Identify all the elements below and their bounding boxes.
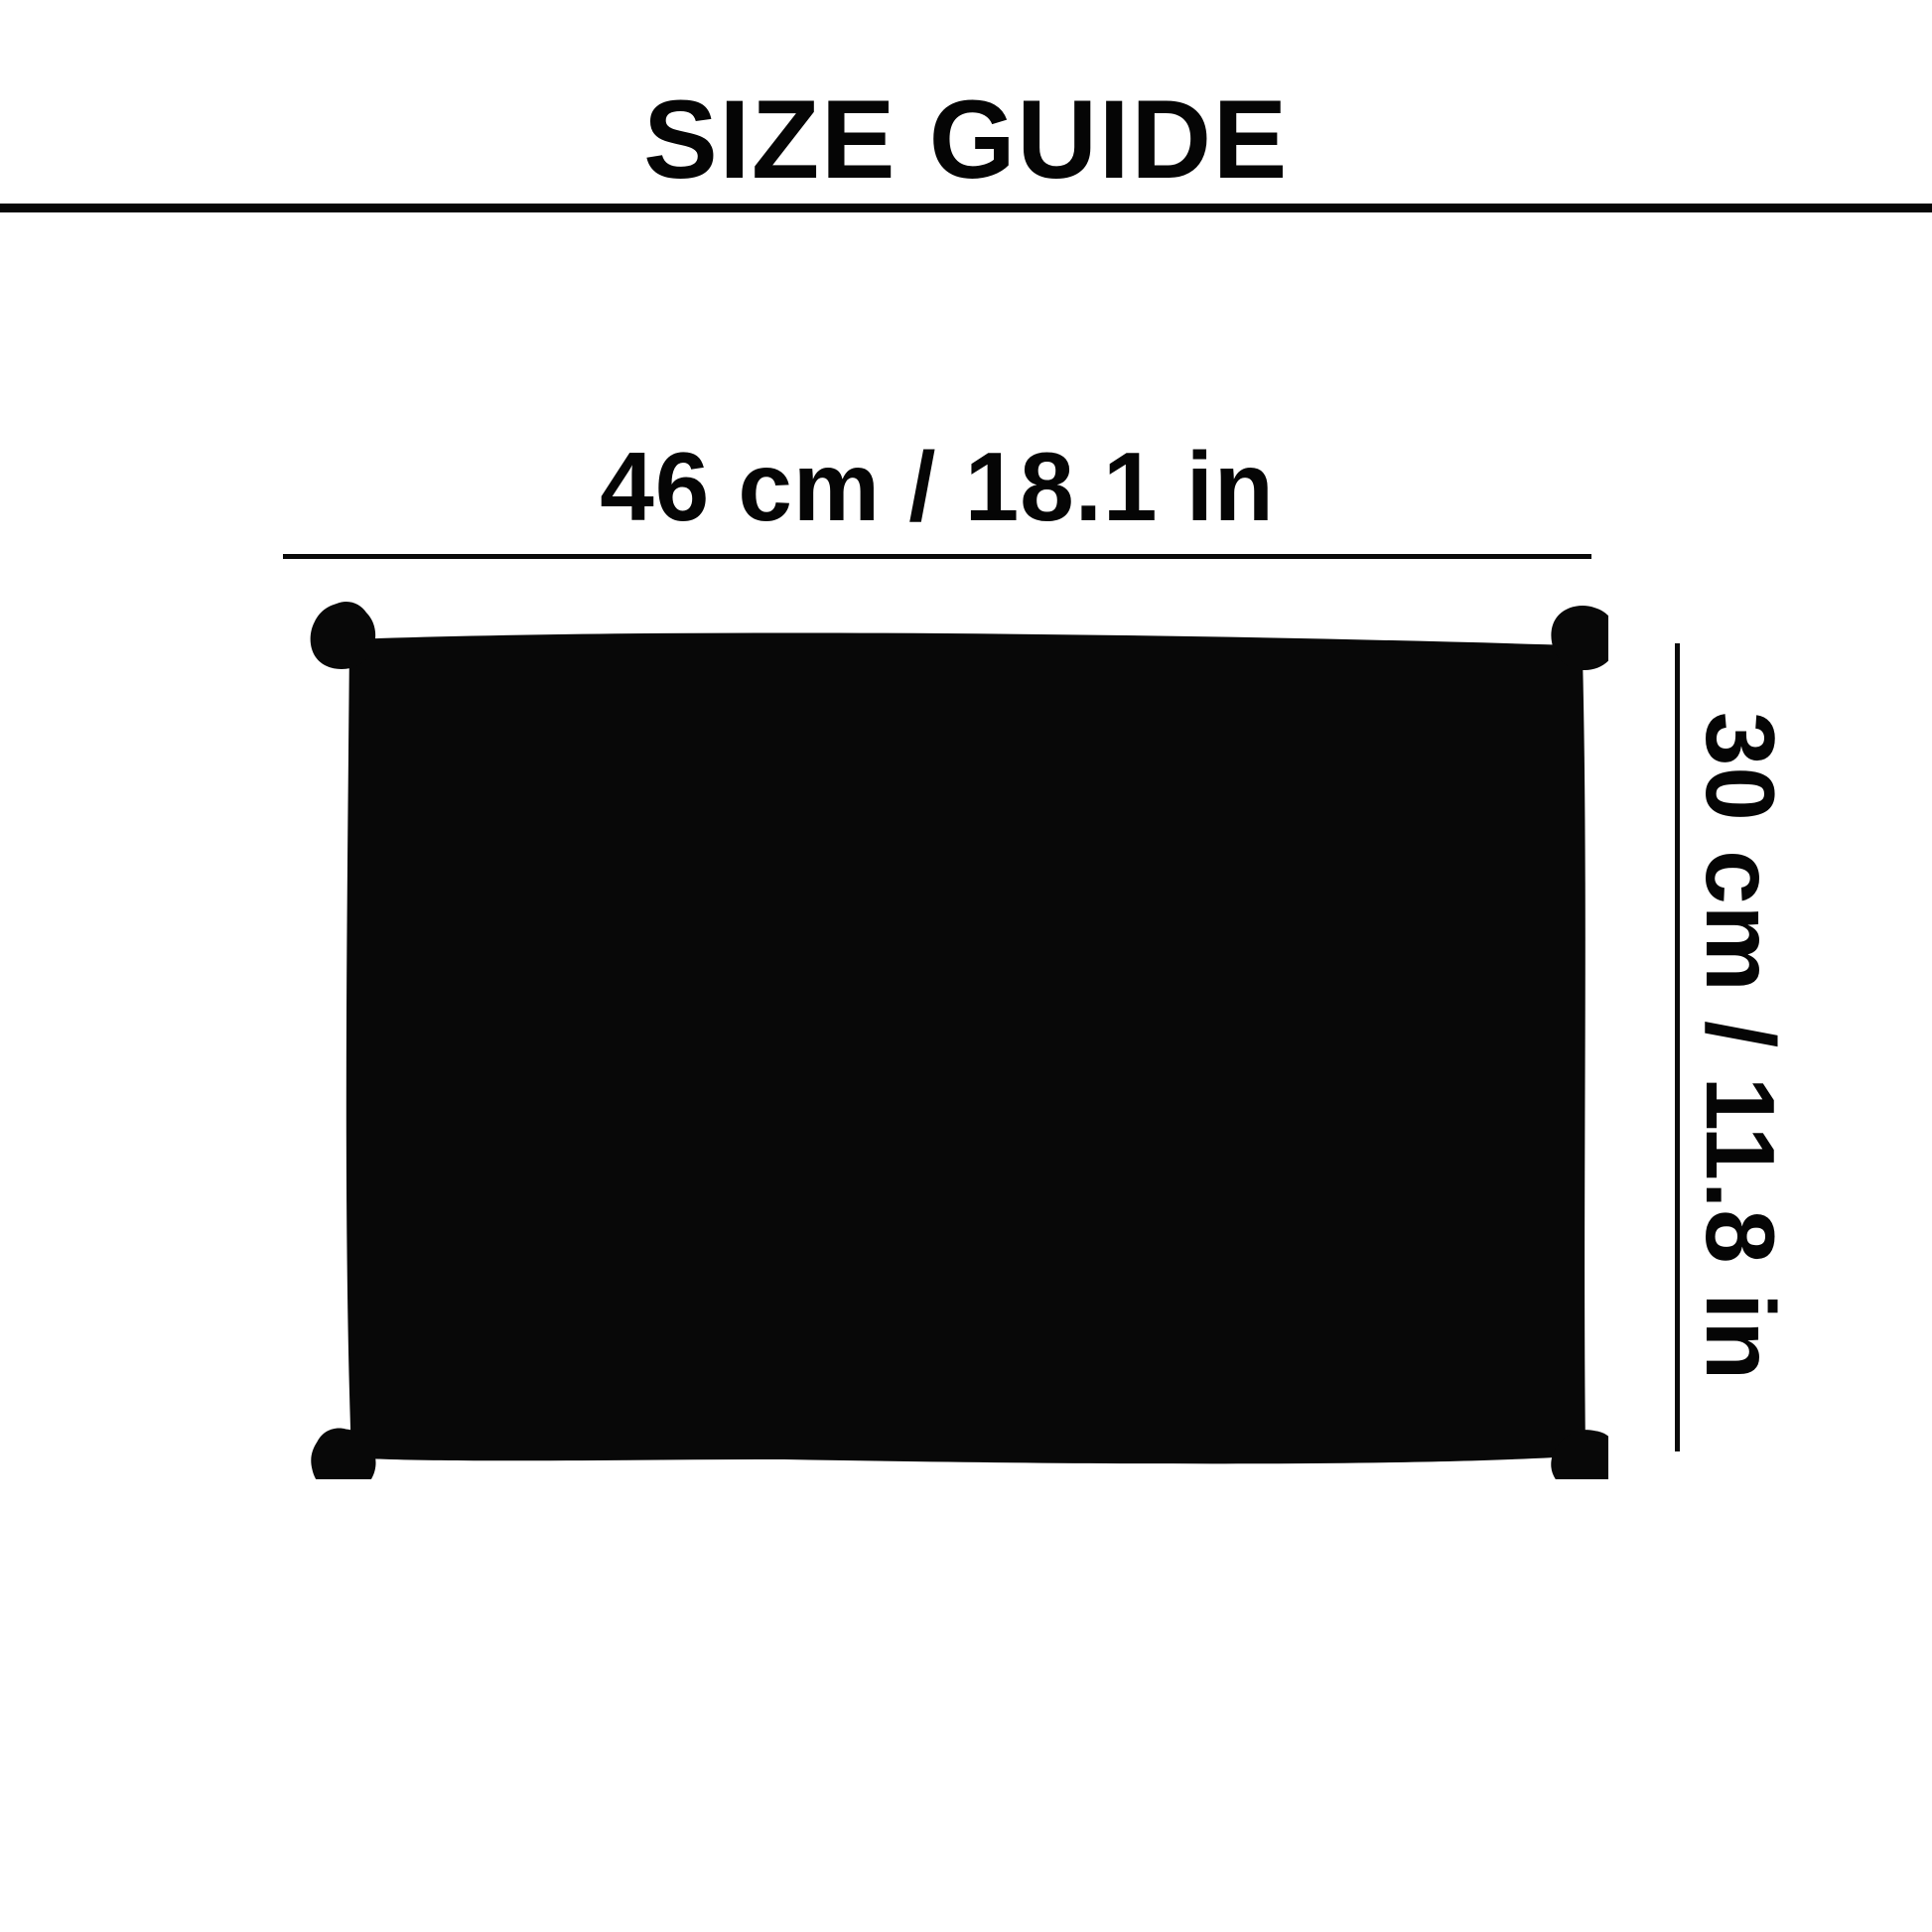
product-silhouette bbox=[288, 596, 1608, 1479]
height-measure-line bbox=[1675, 643, 1680, 1451]
header-divider-line bbox=[0, 204, 1932, 212]
size-guide-page: SIZE GUIDE 46 cm / 18.1 in 30 cm / 11.8 … bbox=[0, 0, 1932, 1932]
width-dimension-label: 46 cm / 18.1 in bbox=[441, 438, 1434, 535]
width-measure-line bbox=[283, 554, 1591, 559]
height-dimension-label: 30 cm / 11.8 in bbox=[1692, 712, 1789, 1381]
mat-body bbox=[346, 632, 1586, 1463]
page-title: SIZE GUIDE bbox=[0, 84, 1932, 196]
corner-tab-top-left bbox=[311, 602, 376, 669]
